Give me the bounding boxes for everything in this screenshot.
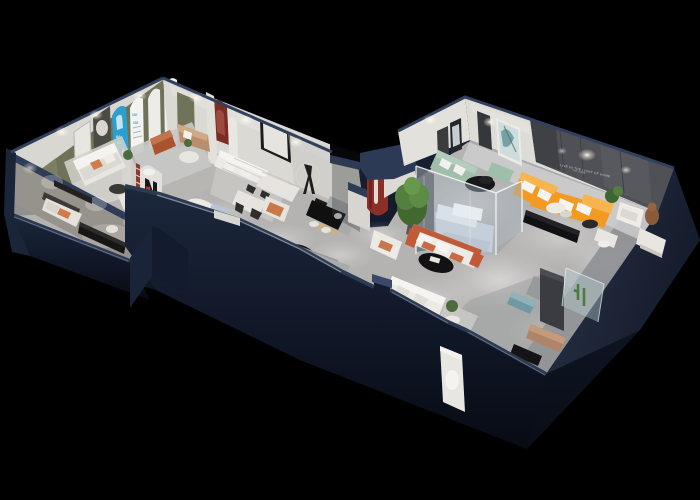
svg-text:888: 888 — [133, 121, 139, 125]
svg-text:888: 888 — [132, 113, 138, 117]
